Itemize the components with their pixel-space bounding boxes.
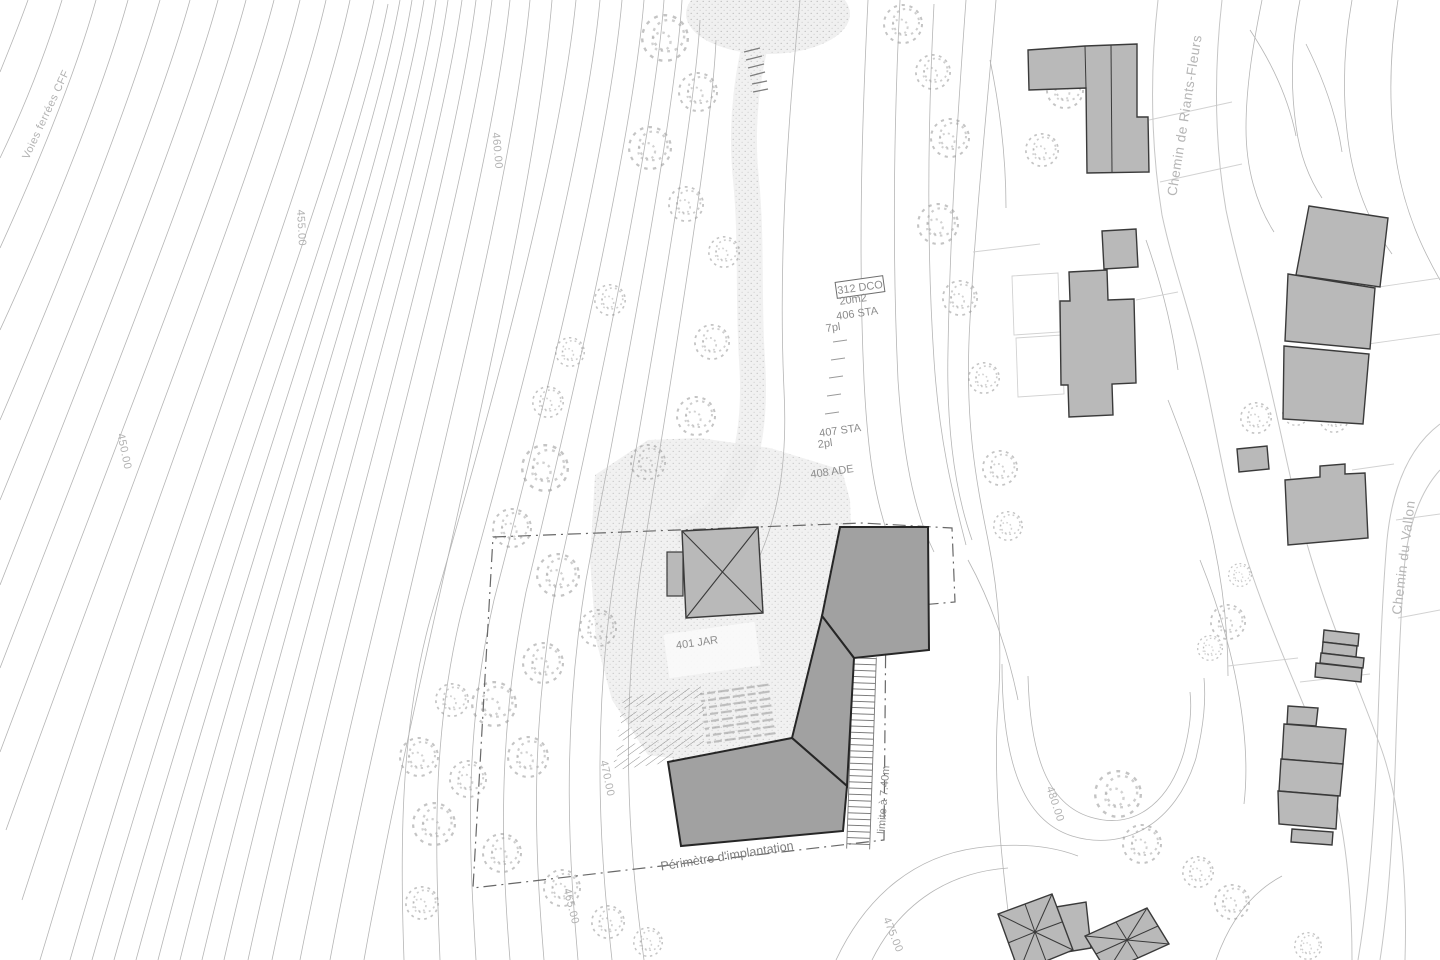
building-block-3 (1283, 346, 1369, 424)
building-small-square (1102, 229, 1138, 269)
parcel-407-places-label: 2pl (817, 437, 833, 451)
building-block-1 (1296, 206, 1388, 287)
building-block-2 (1285, 274, 1375, 349)
contour-455-label: 455.00 (294, 209, 308, 246)
annotation-text-block (699, 679, 778, 744)
building-tiny (1237, 446, 1269, 472)
site-plan: Voies ferrées CFF Chemin de Riants-Fleur… (0, 0, 1440, 960)
parcel-406-places-label: 7pl (825, 321, 841, 335)
